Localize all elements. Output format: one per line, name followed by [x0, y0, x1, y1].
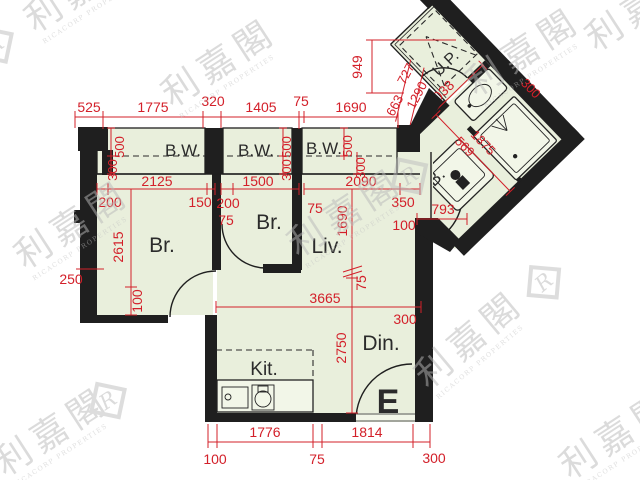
watermark-topleft: R 利嘉閣 RICACORP PROPERTIES — [0, 0, 152, 79]
dim-top-1690: 1690 — [335, 99, 366, 115]
wall-junction-arm — [397, 125, 420, 152]
room-label-kitchen: Kit. — [250, 359, 277, 380]
dim-2125: 2125 — [141, 173, 172, 189]
dim-right-300: 300 — [393, 311, 417, 327]
room-label-dining: Din. — [362, 332, 399, 355]
dim-1500: 1500 — [242, 173, 273, 189]
dim-1776: 1776 — [249, 424, 280, 440]
dim-br1-150: 150 — [188, 194, 212, 210]
dim-663: 663 — [383, 92, 406, 118]
dim-bw1-500: 500 — [112, 136, 127, 158]
dim-2750: 2750 — [333, 332, 349, 363]
dim-949: 949 — [349, 55, 365, 79]
dim-2615: 2615 — [110, 231, 126, 262]
room-label-bw2: B.W. — [238, 141, 274, 160]
wall-br1-bottom — [80, 315, 168, 323]
dim-br1-100: 100 — [129, 289, 145, 313]
dim-liv-75: 75 — [353, 275, 369, 291]
wall-br2-bottom — [263, 264, 301, 273]
dim-793: 793 — [431, 201, 455, 217]
dim-br2-200: 200 — [216, 195, 240, 211]
dim-250: 250 — [59, 271, 83, 287]
watermark-topedge: 利嘉閣 — [579, 0, 640, 60]
watermark-cn-text: 利嘉閣 — [553, 383, 640, 480]
dim-top-1405: 1405 — [245, 99, 276, 115]
floor-plan-canvas: 2038 569 1875 663 727 1290 326 300 B. U.… — [0, 0, 640, 480]
dim-3665: 3665 — [309, 290, 340, 306]
dim-100-lobby: 100 — [392, 217, 416, 233]
room-label-bw3: B.W. — [306, 139, 342, 158]
dim-br2-75: 75 — [218, 212, 234, 228]
dim-top-525: 525 — [77, 99, 101, 115]
dim-bw2-500: 500 — [279, 136, 294, 158]
dim-bottom-75: 75 — [309, 451, 325, 467]
dim-bottom-300: 300 — [422, 450, 446, 466]
dim-bw3-500: 500 — [340, 135, 355, 157]
watermark-bottomright: 利嘉閣 RICACORP PROPERTIES — [553, 383, 640, 480]
dim-top-1775: 1775 — [137, 99, 168, 115]
dim-top-75: 75 — [293, 93, 309, 109]
wall-pier-bw12 — [205, 128, 223, 174]
room-label-bedroom2: Br. — [256, 211, 282, 234]
watermark-bottomleft: 利嘉閣 RICACORP PROPERTIES R — [0, 370, 138, 480]
dim-1814: 1814 — [351, 424, 382, 440]
dim-bottom-100: 100 — [203, 451, 227, 467]
ricacorp-logo-letter: R — [529, 268, 557, 297]
watermark-cn-text: 利嘉閣 — [579, 0, 640, 60]
flat-entrance-marker: E — [377, 383, 400, 421]
dim-bw2-300: 300 — [279, 159, 294, 181]
room-label-bw1: B.W. — [165, 141, 201, 160]
room-label-bedroom1: Br. — [149, 234, 175, 257]
dim-line-bottom — [208, 424, 430, 448]
wall-kitchen-bottom — [205, 413, 356, 422]
wall-corner-post — [205, 315, 217, 422]
